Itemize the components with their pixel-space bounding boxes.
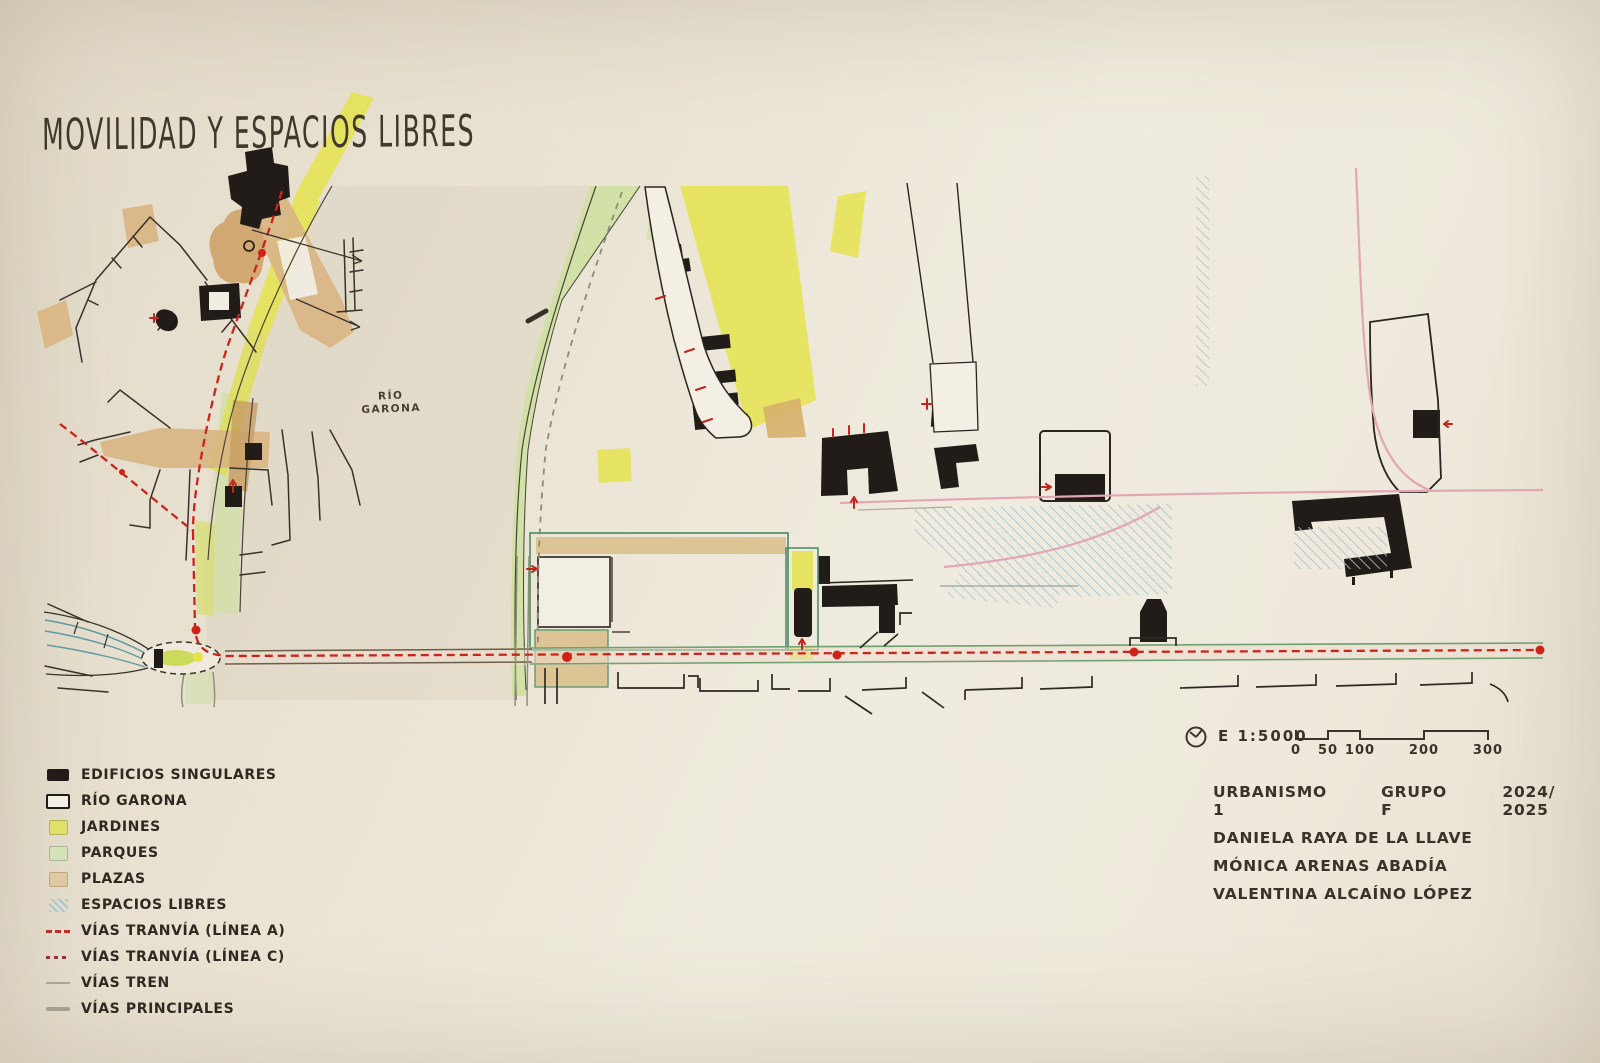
- green-swatch-icon: [46, 846, 70, 861]
- legend-item-espacios-libres: ESPACIOS LIBRES: [46, 892, 285, 918]
- river-garona-label: RÍO GARONA: [356, 389, 427, 417]
- tan-swatch-icon: [46, 872, 70, 887]
- legend-item-tranvia-c: VÍAS TRANVÍA (LÍNEA C): [46, 944, 285, 970]
- author-name: DANIELA RAYA DE LA LLAVE: [1213, 829, 1600, 847]
- group-name: GRUPO F: [1381, 783, 1458, 819]
- course-name: URBANISMO 1: [1213, 783, 1335, 819]
- academic-year: 2024/ 2025: [1502, 783, 1600, 819]
- roundabout: [142, 642, 220, 674]
- scale-tick-0: 0: [1279, 743, 1313, 758]
- legend-item-plazas: PLAZAS: [46, 866, 285, 892]
- hatch-swatch-icon: [46, 899, 70, 912]
- credits-block: URBANISMO 1 GRUPO F 2024/ 2025 DANIELA R…: [1213, 783, 1600, 913]
- white-rect-swatch-icon: [46, 794, 70, 809]
- scale-bar: [1296, 730, 1488, 740]
- thin-line-swatch-icon: [46, 982, 70, 984]
- hand-drawn-urban-plan: MOVILIDAD Y ESPACIOS LIBRES RÍO GARONA E…: [0, 0, 1600, 1063]
- thick-line-swatch-icon: [46, 1007, 70, 1011]
- legend-item-parques: PARQUES: [46, 840, 285, 866]
- legend-item-rio-garona: RÍO GARONA: [46, 788, 285, 814]
- legend-item-edificios: EDIFICIOS SINGULARES: [46, 762, 285, 788]
- legend-item-vias-principales: VÍAS PRINCIPALES: [46, 996, 285, 1022]
- page-title: MOVILIDAD Y ESPACIOS LIBRES: [42, 106, 475, 161]
- author-name: MÓNICA ARENAS ABADÍA: [1213, 857, 1600, 875]
- legend-item-jardines: JARDINES: [46, 814, 285, 840]
- yellow-swatch-icon: [46, 820, 70, 835]
- red-dash-swatch-icon: [46, 930, 70, 933]
- author-name: VALENTINA ALCAÍNO LÓPEZ: [1213, 885, 1600, 903]
- scale-tick-200: 200: [1407, 743, 1441, 758]
- legend: EDIFICIOS SINGULARES RÍO GARONA JARDINES…: [46, 762, 285, 1022]
- legend-item-vias-tren: VÍAS TREN: [46, 970, 285, 996]
- credits-course-line: URBANISMO 1 GRUPO F 2024/ 2025: [1213, 783, 1600, 819]
- maroon-dash-swatch-icon: [46, 956, 70, 959]
- scale-tick-100: 100: [1343, 743, 1377, 758]
- scale-tick-50: 50: [1311, 743, 1345, 758]
- black-rect-swatch-icon: [46, 769, 70, 781]
- legend-item-tranvia-a: VÍAS TRANVÍA (LÍNEA A): [46, 918, 285, 944]
- scale-tick-300: 300: [1471, 743, 1505, 758]
- north-compass-icon: [1187, 728, 1206, 747]
